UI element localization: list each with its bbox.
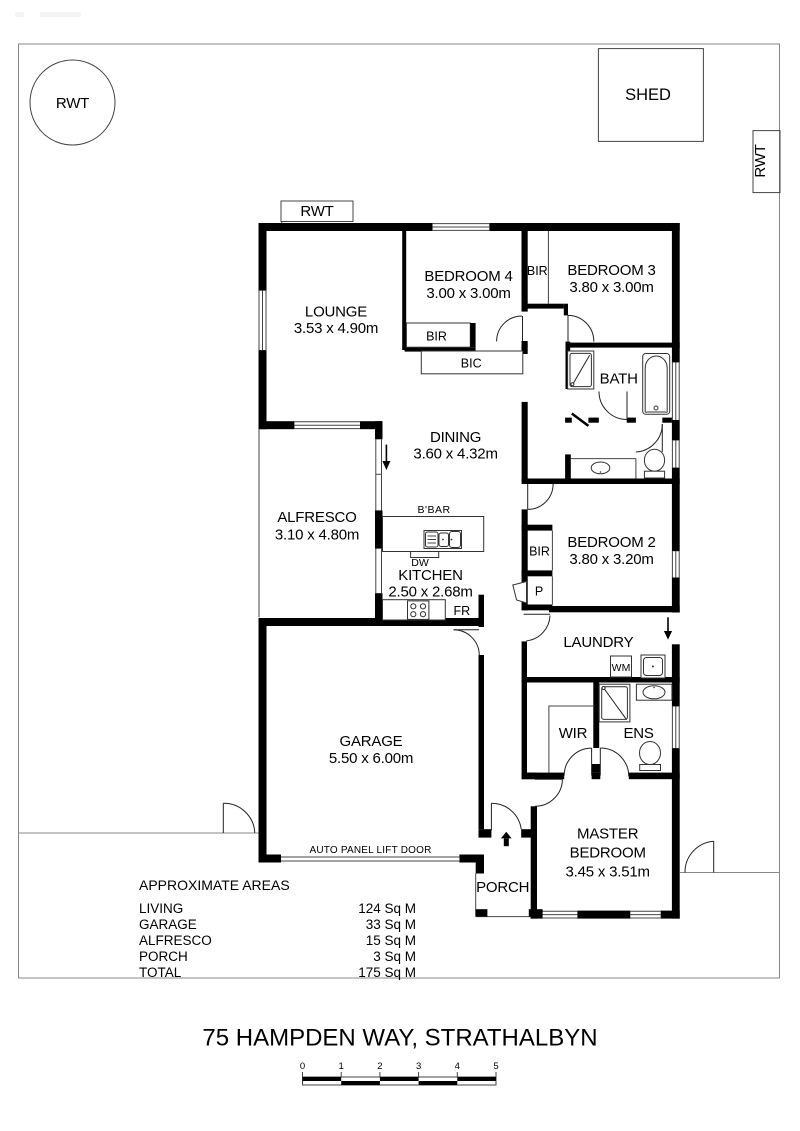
svg-text:BATH: BATH bbox=[600, 371, 638, 388]
svg-text:BEDROOM 4: BEDROOM 4 bbox=[424, 268, 512, 285]
svg-text:TOTAL: TOTAL bbox=[139, 965, 182, 980]
svg-text:3.60 x 4.32m: 3.60 x 4.32m bbox=[413, 446, 497, 463]
svg-text:33 Sq M: 33 Sq M bbox=[366, 917, 416, 932]
svg-text:3.80 x 3.00m: 3.80 x 3.00m bbox=[569, 279, 653, 296]
svg-text:RWT: RWT bbox=[752, 144, 769, 177]
svg-text:RWT: RWT bbox=[56, 95, 89, 112]
svg-text:PORCH: PORCH bbox=[139, 949, 188, 964]
svg-text:MASTER: MASTER bbox=[577, 826, 639, 843]
svg-text:3.10 x 4.80m: 3.10 x 4.80m bbox=[275, 527, 359, 544]
svg-text:1: 1 bbox=[339, 1061, 344, 1072]
svg-text:BEDROOM 3: BEDROOM 3 bbox=[567, 262, 655, 279]
svg-text:P: P bbox=[535, 585, 543, 599]
svg-text:DINING: DINING bbox=[430, 429, 481, 446]
svg-text:3.80 x 3.20m: 3.80 x 3.20m bbox=[569, 551, 653, 568]
svg-text:3 Sq M: 3 Sq M bbox=[373, 949, 416, 964]
svg-text:BIR: BIR bbox=[529, 545, 550, 559]
svg-text:2: 2 bbox=[377, 1061, 382, 1072]
svg-text:BEDROOM: BEDROOM bbox=[570, 845, 646, 862]
svg-text:124 Sq M: 124 Sq M bbox=[358, 901, 416, 916]
svg-text:WM: WM bbox=[612, 662, 631, 674]
svg-text:RWT: RWT bbox=[300, 203, 333, 220]
svg-text:LOUNGE: LOUNGE bbox=[305, 304, 367, 321]
svg-text:FR: FR bbox=[453, 604, 470, 618]
svg-text:SHED: SHED bbox=[625, 86, 671, 104]
svg-text:175 Sq M: 175 Sq M bbox=[358, 965, 416, 980]
svg-text:PORCH: PORCH bbox=[476, 879, 529, 896]
svg-text:3.00 x 3.00m: 3.00 x 3.00m bbox=[426, 285, 510, 302]
svg-text:BEDROOM 2: BEDROOM 2 bbox=[567, 534, 655, 551]
svg-text:5.50 x 6.00m: 5.50 x 6.00m bbox=[329, 750, 413, 767]
svg-text:LAUNDRY: LAUNDRY bbox=[563, 634, 633, 651]
svg-text:GARAGE: GARAGE bbox=[139, 917, 197, 932]
svg-text:75 HAMPDEN WAY, STRATHALBYN: 75 HAMPDEN WAY, STRATHALBYN bbox=[202, 1025, 597, 1052]
svg-text:APPROXIMATE AREAS: APPROXIMATE AREAS bbox=[139, 877, 290, 893]
svg-text:KITCHEN: KITCHEN bbox=[398, 567, 462, 584]
svg-text:WIR: WIR bbox=[559, 725, 588, 742]
svg-text:0: 0 bbox=[300, 1061, 305, 1072]
svg-text:3: 3 bbox=[416, 1061, 421, 1072]
svg-text:AUTO PANEL LIFT DOOR: AUTO PANEL LIFT DOOR bbox=[310, 845, 432, 856]
svg-text:2.50 x 2.68m: 2.50 x 2.68m bbox=[388, 584, 472, 601]
svg-text:LIVING: LIVING bbox=[139, 901, 183, 916]
svg-text:ENS: ENS bbox=[623, 725, 653, 742]
svg-text:BIC: BIC bbox=[461, 357, 482, 371]
svg-text:3.53 x 4.90m: 3.53 x 4.90m bbox=[294, 320, 378, 337]
svg-text:3.45 x 3.51m: 3.45 x 3.51m bbox=[566, 864, 650, 881]
svg-text:15 Sq M: 15 Sq M bbox=[366, 933, 416, 948]
svg-text:BIR: BIR bbox=[527, 264, 548, 278]
svg-text:BIR: BIR bbox=[426, 330, 447, 344]
svg-text:ALFRESCO: ALFRESCO bbox=[277, 509, 356, 526]
svg-text:4: 4 bbox=[455, 1061, 460, 1072]
svg-text:ALFRESCO: ALFRESCO bbox=[139, 933, 212, 948]
svg-text:GARAGE: GARAGE bbox=[340, 733, 403, 750]
svg-text:B'BAR: B'BAR bbox=[417, 504, 450, 516]
svg-text:5: 5 bbox=[493, 1061, 498, 1072]
